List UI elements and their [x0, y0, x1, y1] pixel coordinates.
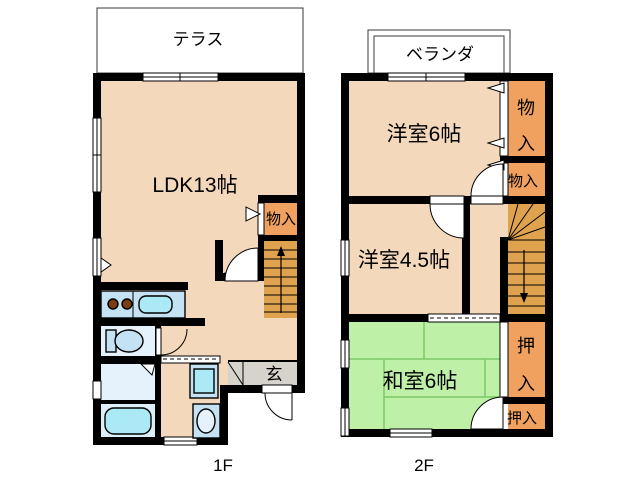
floor-plan-page: テラス: [0, 0, 638, 480]
toilet-bowl: [115, 330, 143, 352]
storage-2f-lower-label: 物入: [508, 173, 538, 190]
door-entrance-arc: [265, 393, 292, 420]
door-opening-western45: [430, 196, 464, 204]
storage-2f-upper-label-char2: 入: [517, 134, 535, 154]
washing-machine-drum: [194, 369, 214, 393]
closet-2f-upper-label-char1: 押: [517, 336, 535, 356]
ldk-label: LDK13帖: [152, 174, 237, 197]
closet-2f-upper-label-char2: 入: [517, 374, 535, 394]
washbasin-bowl: [197, 409, 215, 433]
entrance-area: [228, 362, 297, 385]
door-opening-entrance: [262, 385, 292, 393]
entrance-top-line: [228, 360, 297, 362]
door-storage-1f: [258, 203, 264, 235]
bathtub: [105, 408, 151, 434]
door-opening-western6: [471, 196, 503, 204]
entrance-label: 玄: [266, 365, 283, 384]
sliding-door-laundry: [161, 356, 220, 363]
door-toilet: [156, 328, 161, 355]
hall-2f: [470, 204, 500, 314]
window-washroom-left: [93, 381, 101, 399]
stove-burner-icon: [108, 299, 118, 309]
storage-2f-upper-label-char1: 物: [517, 98, 535, 118]
closet-2f-lower-label: 押入: [507, 410, 537, 427]
floor-1f: テラス: [93, 8, 305, 475]
veranda-label: ベランダ: [406, 45, 474, 64]
stove-burner-icon: [122, 299, 132, 309]
western6-label: 洋室6帖: [387, 123, 462, 146]
western45-label: 洋室4.5帖: [358, 249, 450, 272]
floor-plan-drawing: テラス: [0, 0, 638, 480]
terrace-label: テラス: [173, 30, 224, 49]
door-closet-2f-upper: [500, 322, 508, 397]
floor-2f: ベランダ: [341, 30, 553, 475]
kitchen-sink: [139, 296, 172, 313]
japanese6-label: 和室6帖: [383, 370, 458, 393]
floor1-label: 1F: [213, 456, 233, 475]
storage-1f-label: 物入: [266, 211, 296, 228]
floor2-label: 2F: [414, 456, 434, 475]
